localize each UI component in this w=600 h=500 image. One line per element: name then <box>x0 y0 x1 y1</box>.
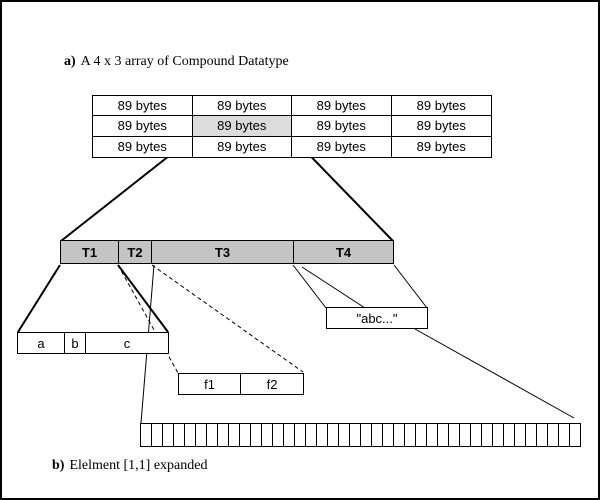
byte-cell <box>570 424 580 446</box>
byte-cell <box>394 424 405 446</box>
array-cell: 89 bytes <box>93 116 193 136</box>
byte-cell <box>372 424 383 446</box>
byte-cell <box>339 424 350 446</box>
field-f2: f2 <box>241 374 303 394</box>
t4-string-box: "abc..." <box>326 307 428 329</box>
byte-cell <box>482 424 493 446</box>
t2-to-f1-dashed-line <box>118 265 178 373</box>
t4-to-string-middle-line <box>302 267 365 308</box>
array-cell: 89 bytes <box>93 96 193 116</box>
byte-cell <box>152 424 163 446</box>
byte-stream-bar <box>140 423 581 447</box>
byte-cell <box>559 424 570 446</box>
byte-cell <box>537 424 548 446</box>
byte-cell <box>207 424 218 446</box>
segment-t4: T4 <box>294 241 393 263</box>
byte-cell <box>284 424 295 446</box>
byte-cell <box>427 424 438 446</box>
array-cell: 89 bytes <box>292 116 392 136</box>
array-cell: 89 bytes <box>292 137 392 157</box>
byte-cell <box>515 424 526 446</box>
byte-cell <box>361 424 372 446</box>
byte-cell <box>350 424 361 446</box>
byte-cell <box>240 424 251 446</box>
byte-cell <box>405 424 416 446</box>
segment-t3: T3 <box>152 241 294 263</box>
byte-cell <box>328 424 339 446</box>
t1-to-fields-left-line <box>18 265 60 332</box>
string-to-byte-bar-line <box>415 329 574 418</box>
array-cell: 89 bytes <box>392 96 492 116</box>
byte-cell <box>438 424 449 446</box>
byte-cell <box>317 424 328 446</box>
array-cell: 89 bytes <box>392 116 492 136</box>
byte-cell <box>383 424 394 446</box>
diagram-canvas: a)A 4 x 3 array of Compound Datatype 89 … <box>0 0 600 500</box>
array-cell: 89 bytes <box>193 137 293 157</box>
t4-string-value: "abc..." <box>356 311 397 326</box>
byte-cell <box>295 424 306 446</box>
byte-cell <box>163 424 174 446</box>
t1-to-fields-right-line <box>118 265 168 332</box>
byte-cell <box>273 424 284 446</box>
field-a: a <box>18 333 65 353</box>
byte-cell <box>416 424 427 446</box>
byte-cell <box>185 424 196 446</box>
field-f1: f1 <box>179 374 241 394</box>
array-cell: 89 bytes <box>292 96 392 116</box>
byte-cell <box>174 424 185 446</box>
segment-t1: T1 <box>61 241 119 263</box>
byte-cell <box>196 424 207 446</box>
t2-to-f2-dashed-line <box>152 265 303 372</box>
byte-cell <box>460 424 471 446</box>
compound-array-table: 89 bytes 89 bytes 89 bytes 89 bytes 89 b… <box>92 95 492 158</box>
compound-type-bar: T1 T2 T3 T4 <box>60 240 394 264</box>
byte-cell <box>306 424 317 446</box>
array-cell: 89 bytes <box>392 137 492 157</box>
byte-cell <box>229 424 240 446</box>
array-cell-highlighted: 89 bytes <box>193 116 293 136</box>
byte-cell <box>548 424 559 446</box>
t4-to-string-right-line <box>394 265 427 308</box>
array-cell: 89 bytes <box>93 137 193 157</box>
t1-fields-box: a b c <box>17 332 169 354</box>
byte-cell <box>141 424 152 446</box>
byte-cell <box>251 424 262 446</box>
array-cell: 89 bytes <box>193 96 293 116</box>
byte-cell <box>449 424 460 446</box>
byte-cell <box>526 424 537 446</box>
byte-cell <box>471 424 482 446</box>
byte-cell <box>262 424 273 446</box>
t2-fields-box: f1 f2 <box>178 373 304 395</box>
field-b: b <box>65 333 86 353</box>
byte-cell <box>504 424 515 446</box>
segment-t2: T2 <box>119 241 152 263</box>
byte-cell <box>218 424 229 446</box>
byte-cell <box>493 424 504 446</box>
field-c: c <box>86 333 168 353</box>
